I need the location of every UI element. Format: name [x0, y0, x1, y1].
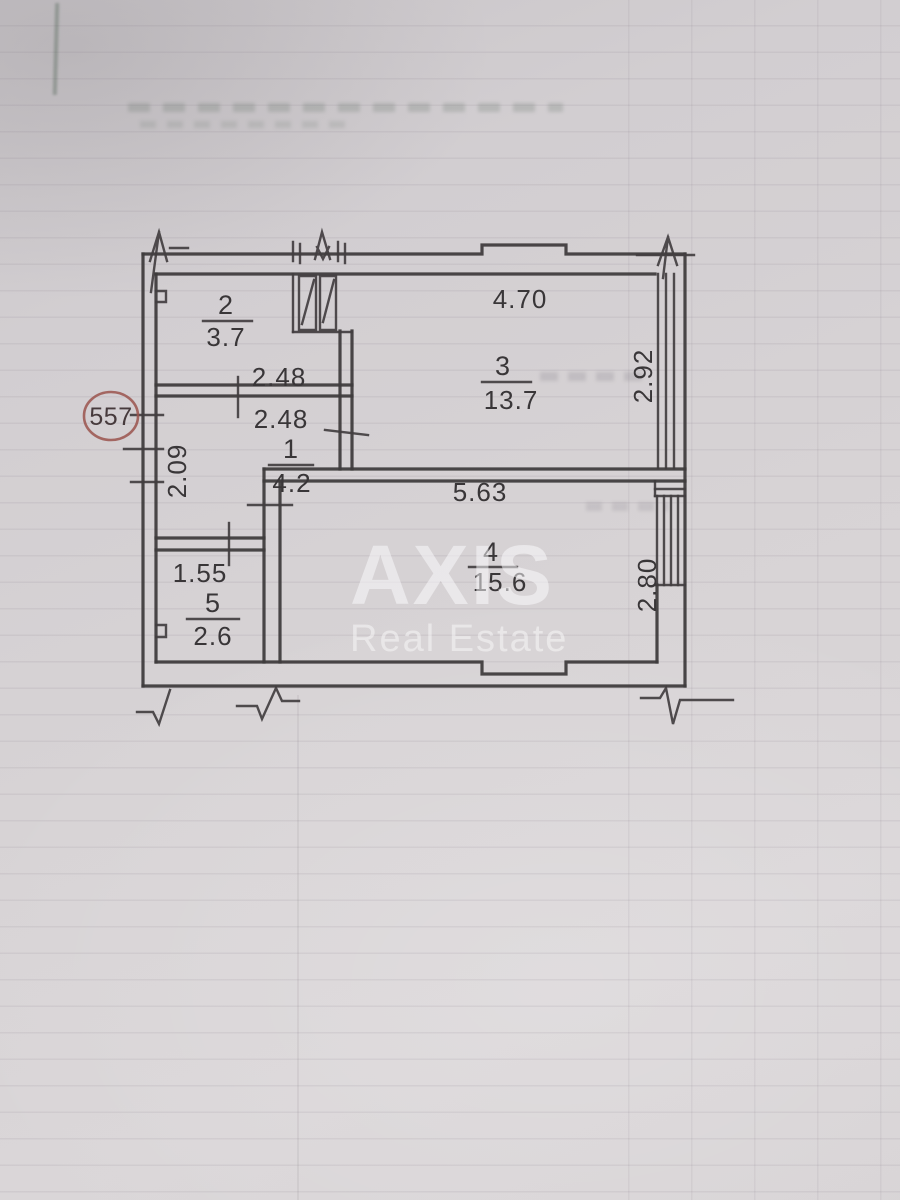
- dim-room2-width: 2.48: [252, 362, 307, 392]
- svg-text:13.7: 13.7: [484, 385, 539, 415]
- unit-number: 557: [89, 403, 132, 431]
- svg-text:4.2: 4.2: [272, 468, 311, 498]
- svg-text:3: 3: [495, 351, 511, 381]
- room-5-label: 5 2.6: [187, 588, 239, 651]
- svg-text:5: 5: [205, 588, 221, 618]
- window-sill-divider: [655, 481, 685, 496]
- room-3-label: 3 13.7: [482, 351, 538, 415]
- unit-number-stamp: 557: [84, 392, 138, 440]
- watermark-brand: AXIS: [350, 533, 568, 617]
- dim-hall-width: 2.48: [254, 404, 309, 434]
- ventilation-shafts: [293, 274, 352, 332]
- dim-room4-depth: 2.80: [632, 558, 662, 613]
- dim-room5-width: 1.55: [173, 558, 228, 588]
- dim-room4-width: 5.63: [453, 477, 508, 507]
- svg-text:1: 1: [283, 434, 299, 464]
- room-2-label: 2 3.7: [203, 290, 252, 352]
- room-1-label: 1 4.2: [269, 434, 313, 498]
- svg-text:2.6: 2.6: [193, 621, 232, 651]
- scanned-floor-plan-page: 2 3.7 1 4.2 3 13.7 4 15.6 5: [0, 0, 900, 1200]
- svg-text:2: 2: [218, 290, 234, 320]
- dim-hall-depth: 2.09: [162, 444, 192, 499]
- dim-room3-depth: 2.92: [628, 349, 658, 404]
- svg-text:3.7: 3.7: [206, 322, 245, 352]
- dim-room3-width: 4.70: [493, 284, 548, 314]
- watermark: AXIS Real Estate: [350, 533, 568, 658]
- window-band-room3: [658, 274, 674, 468]
- watermark-tagline: Real Estate: [350, 620, 568, 658]
